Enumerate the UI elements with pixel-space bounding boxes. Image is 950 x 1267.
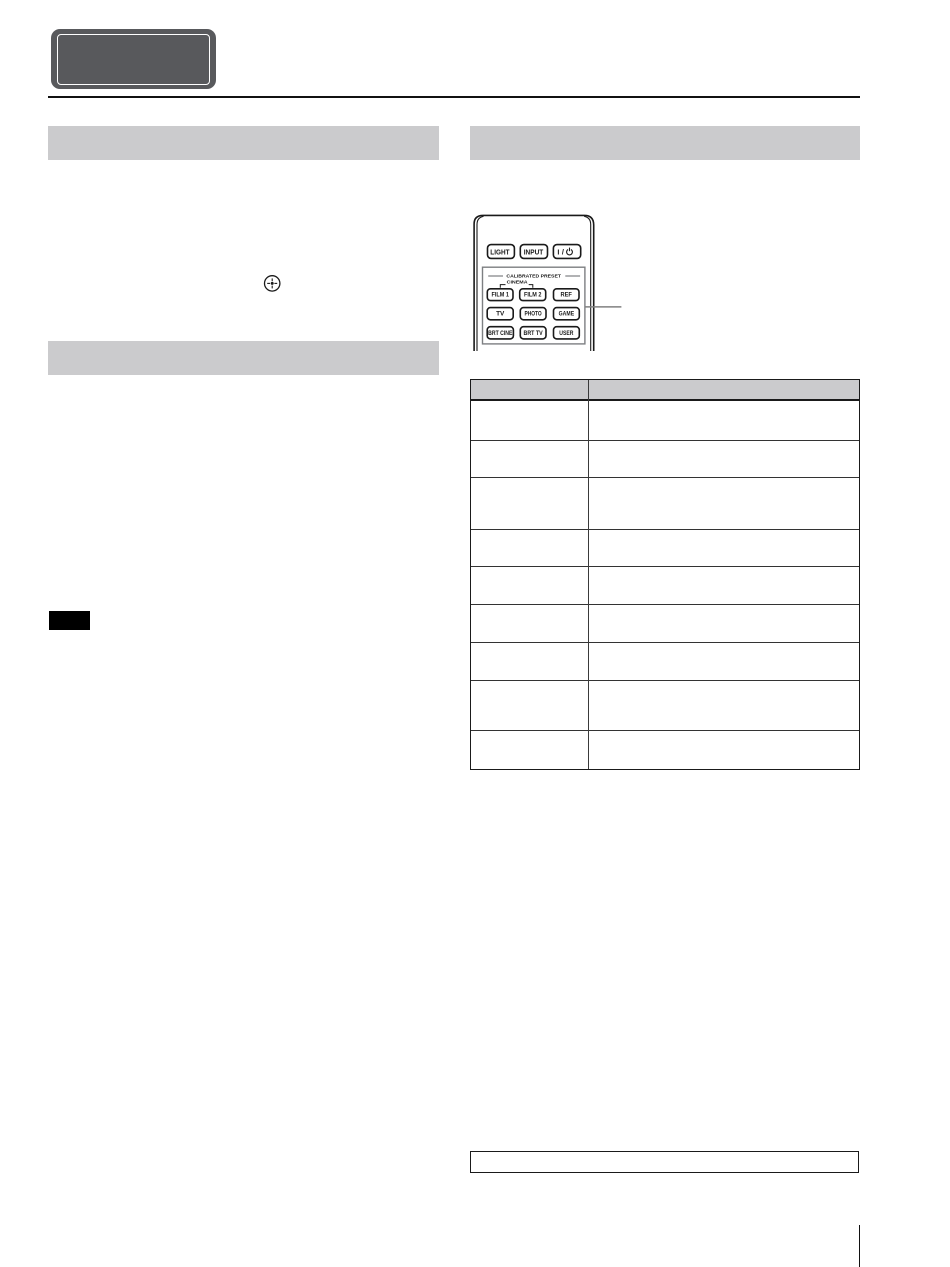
svg-text:I: I [557,247,559,256]
svg-text:BRT CINE: BRT CINE [488,331,512,337]
svg-text:GAME: GAME [559,312,575,318]
svg-text:INPUT: INPUT [524,247,544,256]
svg-text:/: / [562,247,564,256]
svg-text:PHOTO: PHOTO [524,312,542,318]
svg-text:LIGHT: LIGHT [490,247,510,256]
svg-text:FILM 2: FILM 2 [524,293,542,299]
svg-text:BRT TV: BRT TV [524,331,543,337]
svg-text:CALIBRATED PRESET: CALIBRATED PRESET [506,273,561,279]
svg-text:TV: TV [496,312,504,318]
svg-text:REF: REF [560,293,572,299]
svg-text:FILM 1: FILM 1 [492,293,510,299]
svg-text:CINEMA: CINEMA [507,280,528,286]
svg-text:USER: USER [559,331,574,337]
